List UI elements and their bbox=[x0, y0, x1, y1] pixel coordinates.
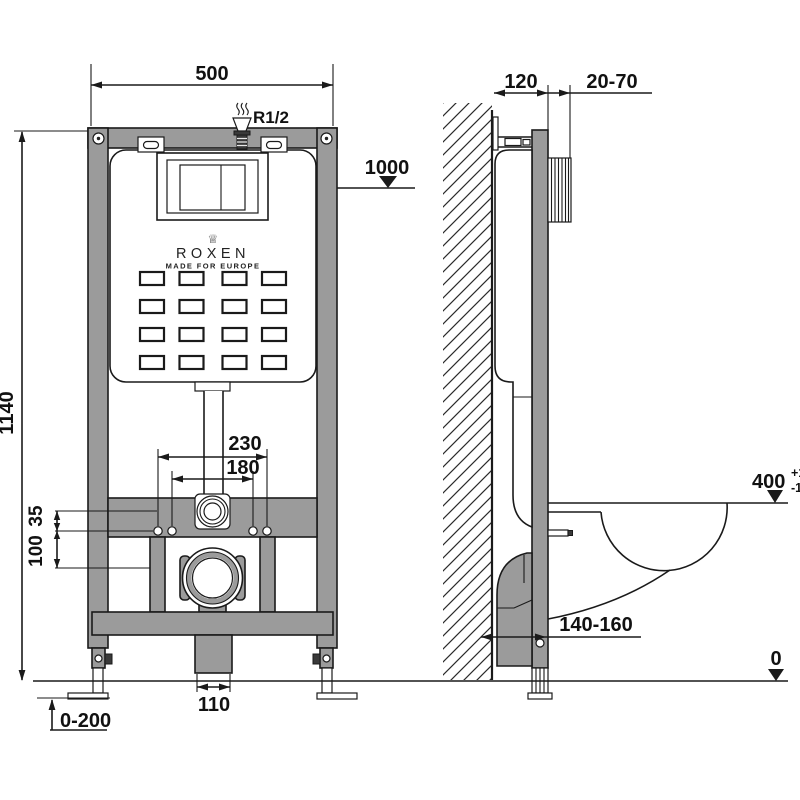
dim-offset-small-label: 35 bbox=[26, 505, 47, 527]
dim-depth-label: 120 bbox=[504, 71, 537, 93]
dim-height-1140: 1140 bbox=[0, 131, 88, 681]
dim-span-outer-label: 230 bbox=[228, 433, 261, 455]
wc-frame-technical-drawing: R1/2 ♕ ROXEN MADE FOR EUROPE bbox=[0, 0, 800, 800]
frame-top-rail bbox=[88, 128, 337, 148]
dim-offset-large-label: 100 bbox=[26, 535, 47, 567]
bowl-inner-arc bbox=[601, 503, 727, 571]
lower-crossbar bbox=[92, 612, 333, 635]
brand-tagline: MADE FOR EUROPE bbox=[166, 262, 261, 271]
frame-left-rail bbox=[88, 128, 108, 648]
steam-line-icon bbox=[237, 103, 240, 115]
bracket-nut bbox=[523, 140, 530, 146]
bracket-bolt bbox=[505, 139, 521, 146]
bowl-height-label: 400 bbox=[752, 471, 785, 493]
dim-outlet-label: 140-160 bbox=[559, 614, 632, 636]
right-foot-plate bbox=[317, 693, 357, 699]
mount-bolt-rod bbox=[548, 530, 568, 536]
bowl-height-tol-plus: +10 bbox=[791, 466, 800, 480]
frame-right-rail bbox=[317, 128, 337, 648]
front-view: R1/2 ♕ ROXEN MADE FOR EUROPE bbox=[0, 63, 415, 732]
mount-hole bbox=[168, 527, 176, 535]
right-post bbox=[260, 537, 275, 612]
dim-height-label: 1140 bbox=[0, 391, 18, 434]
flush-pipe-fill bbox=[204, 391, 223, 498]
dim-feet-label: 0-200 bbox=[60, 710, 111, 732]
left-leg-clip bbox=[105, 654, 112, 664]
mount-hole bbox=[154, 527, 162, 535]
fitting-ring-inner bbox=[204, 503, 221, 520]
crown-icon: ♕ bbox=[208, 232, 219, 246]
hanger-slot-left bbox=[144, 142, 159, 149]
wall-hatch bbox=[443, 103, 492, 680]
corner-screw-right-dot bbox=[325, 137, 328, 140]
wall-bracket bbox=[493, 117, 498, 150]
side-view: 120 20-70 400 +10 -10 140-160 0 bbox=[443, 71, 800, 699]
dim-width-500: 500 bbox=[91, 63, 333, 126]
flush-pipe-flange bbox=[195, 382, 230, 391]
waste-pipe bbox=[195, 635, 232, 673]
inlet-size-label: R1/2 bbox=[253, 108, 289, 127]
inlet-flange bbox=[234, 131, 250, 135]
brand-name: ROXEN bbox=[176, 246, 250, 262]
marker-floor-level: 0 bbox=[768, 648, 784, 681]
dim-width-label: 500 bbox=[195, 63, 228, 85]
bowl-body-curve bbox=[548, 570, 670, 619]
dim-drain-label: 110 bbox=[198, 694, 230, 716]
marker-1000-label: 1000 bbox=[365, 157, 410, 179]
dim-plate-depth-label: 20-70 bbox=[586, 71, 637, 93]
mount-bolt-tip bbox=[568, 531, 573, 536]
right-leg-clip bbox=[313, 654, 320, 664]
mount-hole bbox=[263, 527, 271, 535]
installation-drawing-page: R1/2 ♕ ROXEN MADE FOR EUROPE bbox=[0, 0, 800, 800]
hanger-slot-right bbox=[267, 142, 282, 149]
marker-1000: 1000 bbox=[337, 157, 415, 188]
right-leg-hole bbox=[323, 655, 330, 662]
bowl-height-tol-minus: -10 bbox=[791, 481, 800, 495]
left-post bbox=[150, 537, 165, 612]
corner-screw-left-dot bbox=[97, 137, 100, 140]
floor-level-label: 0 bbox=[770, 648, 781, 670]
profile-hole bbox=[536, 639, 544, 647]
frame-profile bbox=[532, 130, 548, 668]
drain-socket-inner bbox=[193, 558, 233, 598]
steam-line-icon bbox=[241, 103, 244, 115]
marker-bowl-height: 400 +10 -10 bbox=[752, 466, 800, 503]
steam-line-icon bbox=[246, 103, 249, 115]
dim-feet-range: 0-200 bbox=[37, 698, 111, 732]
drain-elbow bbox=[497, 553, 532, 666]
cistern-profile bbox=[495, 150, 532, 527]
dim-span-inner-label: 180 bbox=[226, 457, 259, 479]
flush-buttons bbox=[180, 165, 245, 210]
left-leg-hole bbox=[95, 655, 102, 662]
side-foot-plate bbox=[528, 693, 552, 699]
mount-hole bbox=[249, 527, 257, 535]
